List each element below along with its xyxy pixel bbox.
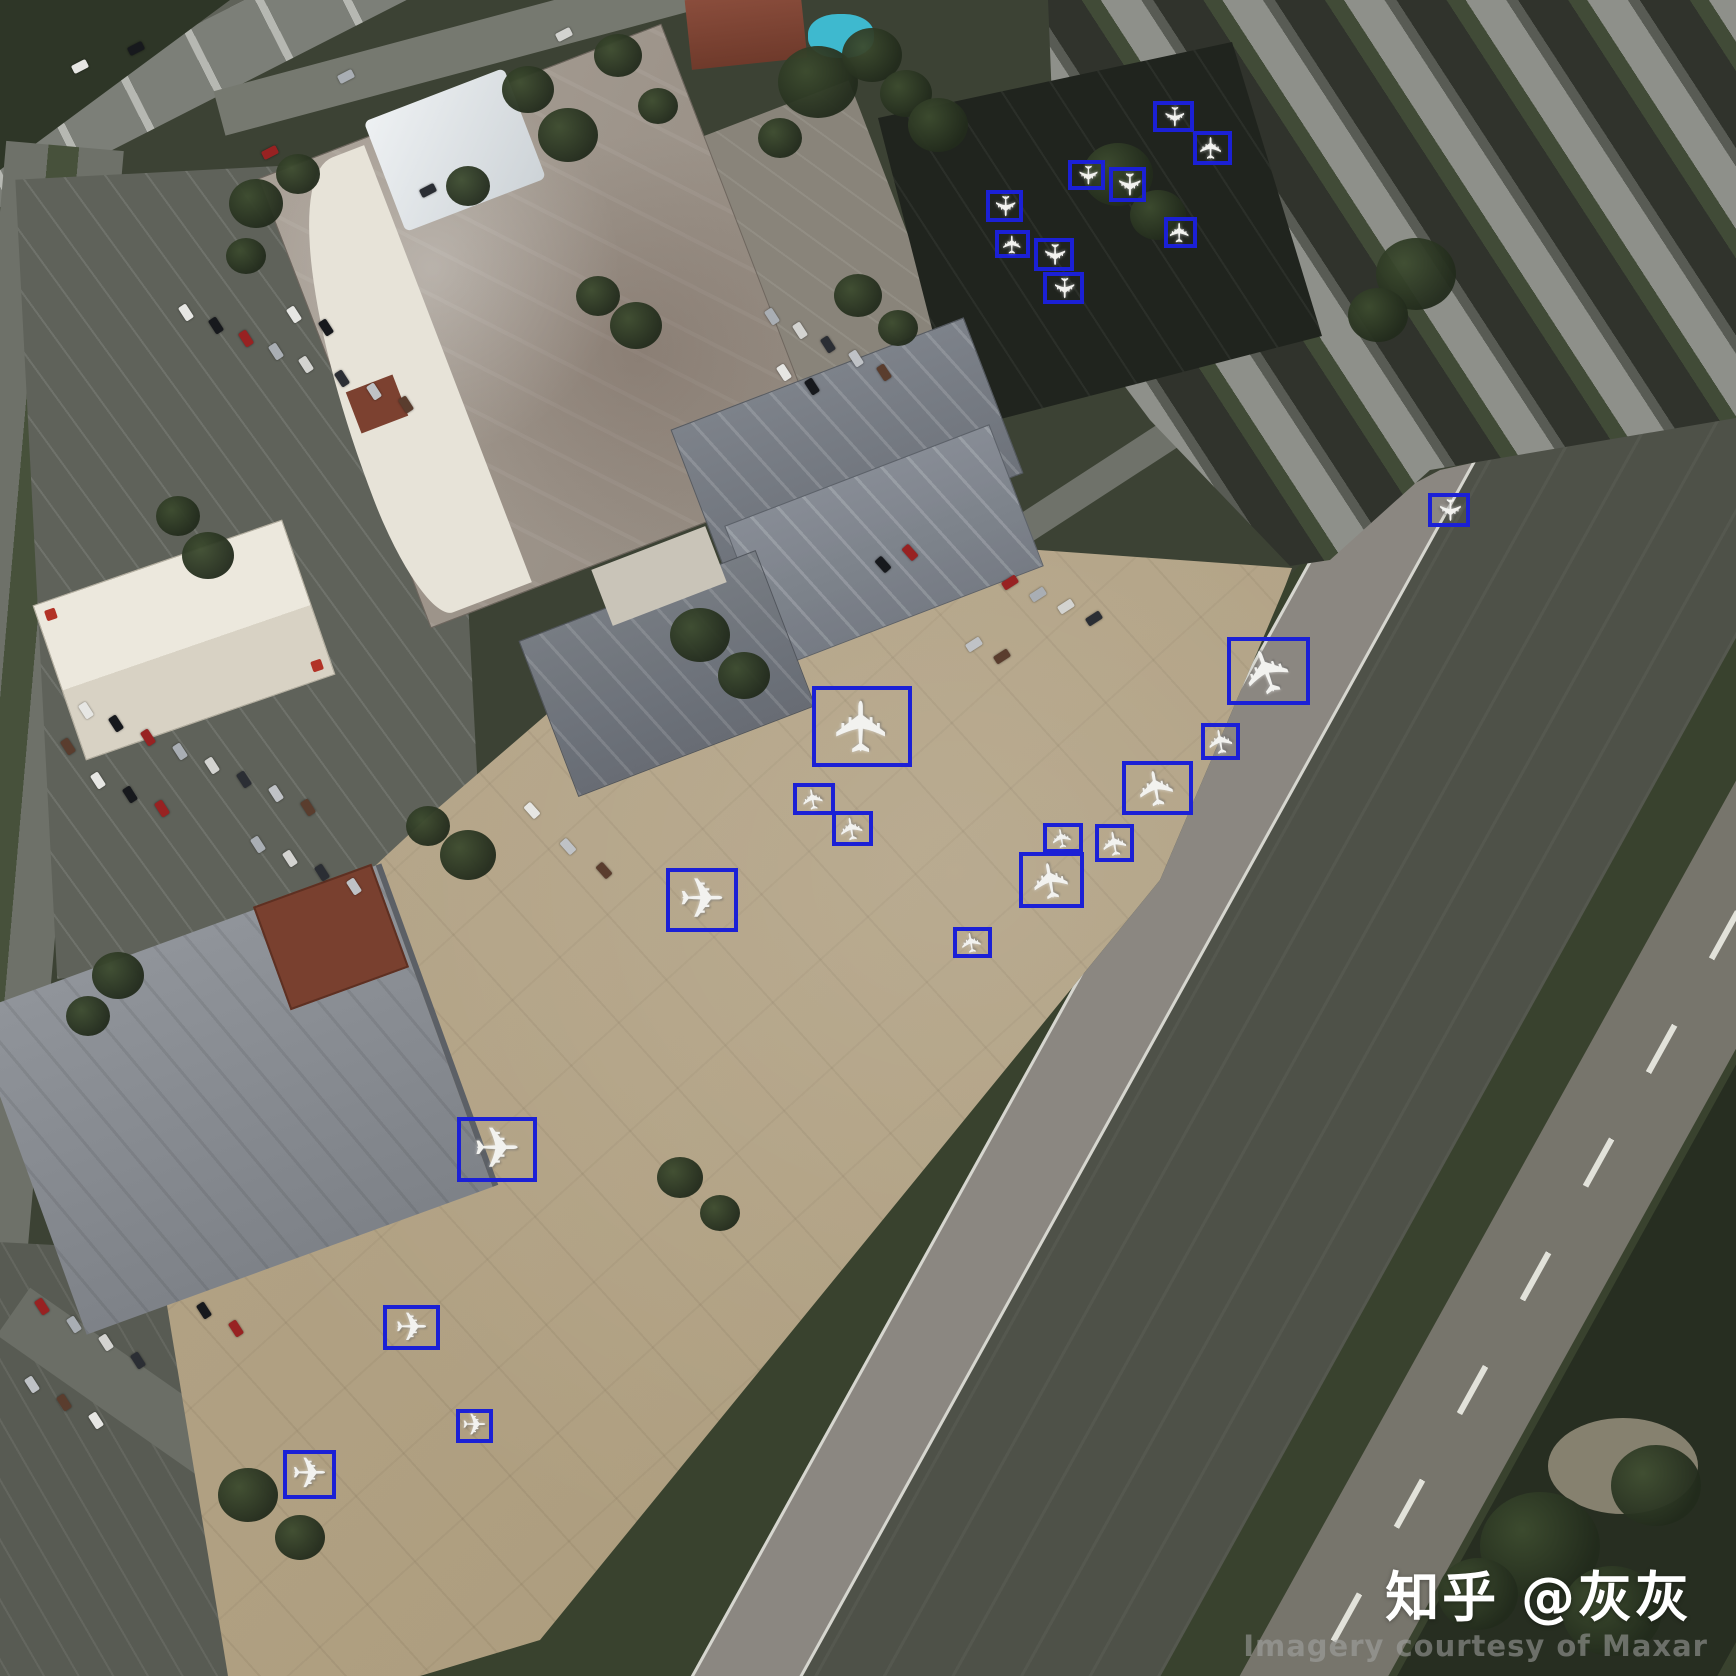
airplane-detection-box[interactable]: ✈ [1019,852,1084,908]
airplane-icon: ✈ [1232,637,1306,705]
airplane-detection-box[interactable]: ✈ [666,868,738,932]
airplane-detection-box[interactable]: ✈ [383,1305,440,1350]
airplane-detection-box[interactable]: ✈ [1095,824,1134,862]
airplane-icon: ✈ [462,1411,487,1441]
airplane-icon: ✈ [1000,234,1025,255]
airplane-detection-box[interactable]: ✈ [1043,823,1083,853]
airplane-detection-box[interactable]: ✈ [832,811,873,846]
airplane-detection-box[interactable]: ✈ [457,1117,537,1182]
tree [275,1515,325,1560]
tree [156,496,200,536]
airplane-icon: ✈ [1112,172,1143,198]
airplane-detection-box[interactable]: ✈ [283,1450,336,1499]
airplane-icon: ✈ [1197,135,1227,160]
tree [1611,1445,1701,1526]
airplane-detection-box[interactable]: ✈ [995,230,1030,258]
airplane-detection-box[interactable]: ✈ [986,190,1023,222]
airplane-detection-box[interactable]: ✈ [1164,217,1197,248]
airplane-detection-box[interactable]: ✈ [1109,167,1146,202]
imagery-attribution: Imagery courtesy of Maxar [1243,1629,1708,1663]
zhihu-watermark: 知乎 @灰灰 [1385,1553,1692,1632]
tree [700,1195,740,1231]
airplane-icon: ✈ [1130,764,1184,812]
tree [594,34,642,77]
airplane-icon: ✈ [1096,827,1133,860]
tree [502,66,554,113]
tree [406,806,450,846]
tree [92,952,144,999]
airplane-icon: ✈ [798,785,830,813]
airplane-detection-box[interactable]: ✈ [1043,272,1084,304]
airplane-detection-box[interactable]: ✈ [1122,761,1193,815]
tree [229,179,283,228]
tree [446,166,490,206]
airplane-detection-box[interactable]: ✈ [1227,637,1310,705]
tree [66,996,110,1036]
airplane-detection-box[interactable]: ✈ [456,1409,493,1443]
tree [834,274,882,317]
tree [657,1157,703,1198]
satellite-image: ✈✈✈✈✈✈✈✈✈✈✈✈✈✈✈✈✈✈✈✈✈✈✈✈✈ Imagery courte… [0,0,1736,1676]
vehicle [261,145,279,160]
airplane-detection-box[interactable]: ✈ [1068,160,1105,190]
tree [610,302,662,349]
airplane-icon: ✈ [679,872,726,928]
tree [718,652,770,699]
tree [638,88,678,124]
tree [1348,288,1408,342]
airplane-icon: ✈ [473,1121,521,1178]
airplane-icon: ✈ [1202,725,1239,758]
airplane-icon: ✈ [291,1453,327,1496]
airplane-icon: ✈ [1048,825,1077,851]
tree [758,118,802,158]
airplane-icon: ✈ [1050,276,1078,299]
tree [908,98,968,152]
airplane-icon: ✈ [991,194,1019,217]
airplane-detection-box[interactable]: ✈ [1201,723,1240,760]
tree [218,1468,278,1522]
airplane-icon: ✈ [835,813,870,844]
airplane-detection-box[interactable]: ✈ [1153,101,1194,132]
airplane-icon: ✈ [1160,105,1187,128]
airplane-icon: ✈ [1073,164,1099,186]
tree [276,154,320,194]
airplane-detection-box[interactable]: ✈ [953,927,992,958]
tree [670,608,730,662]
airplane-icon: ✈ [395,1308,429,1348]
tree [538,108,598,162]
tree [226,238,266,274]
airplane-detection-box[interactable]: ✈ [1034,238,1074,271]
airplane-icon: ✈ [1024,856,1079,905]
airplane-icon: ✈ [1040,242,1069,266]
tree [182,532,234,579]
airplane-detection-box[interactable]: ✈ [1193,131,1232,165]
airplane-icon: ✈ [1434,497,1464,522]
airplane-detection-box[interactable]: ✈ [793,783,835,815]
airplane-icon: ✈ [957,929,988,956]
airplane-icon: ✈ [827,697,898,757]
tree [576,276,620,316]
airplane-icon: ✈ [1167,221,1194,244]
tree [878,310,918,346]
airplane-detection-box[interactable]: ✈ [1428,493,1470,527]
tree [440,830,496,880]
airplane-detection-box[interactable]: ✈ [812,686,912,767]
